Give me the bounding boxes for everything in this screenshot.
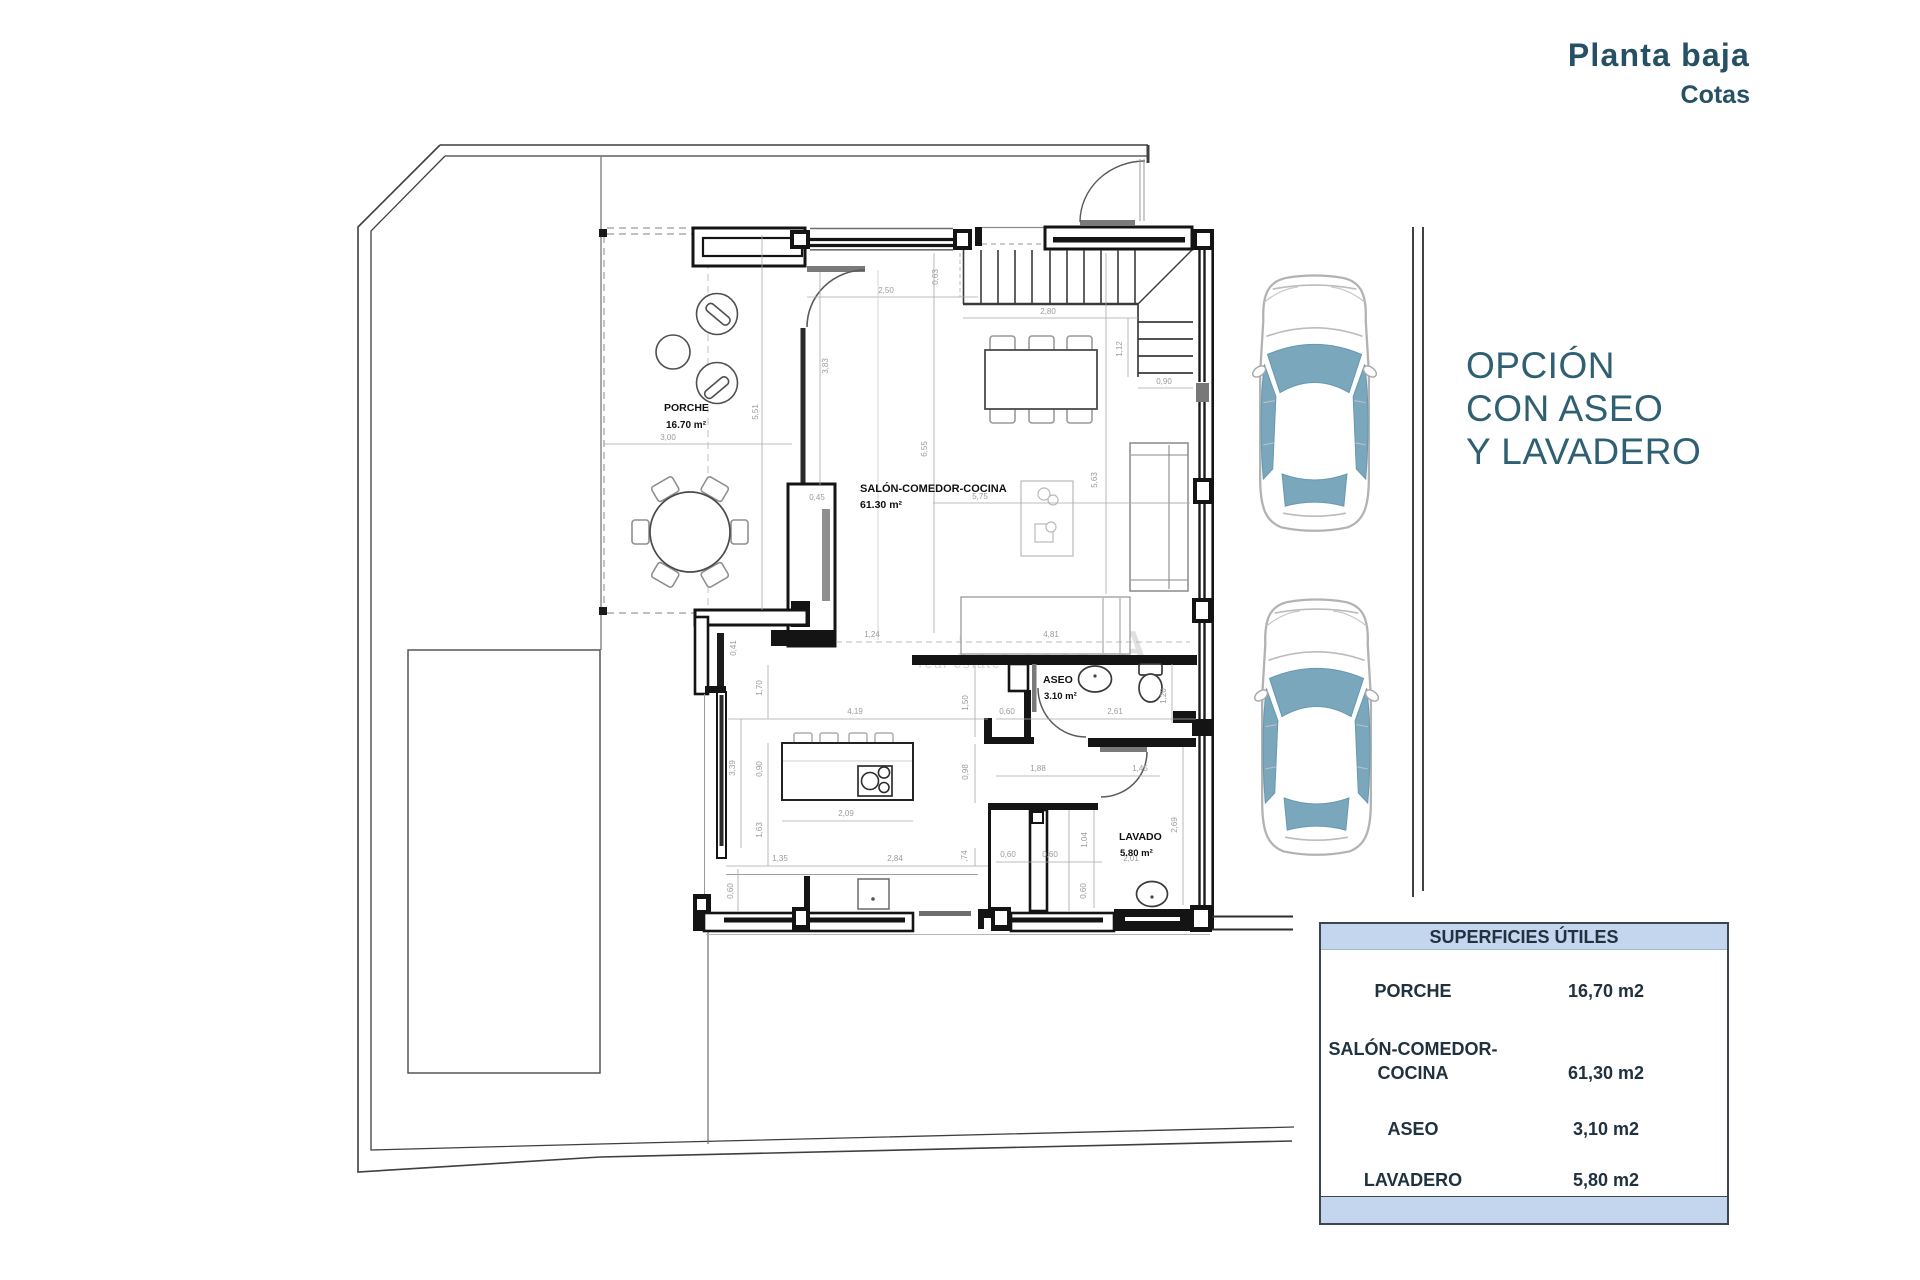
svg-text:1,88: 1,88 xyxy=(1030,764,1046,773)
svg-text:PORCHE: PORCHE xyxy=(664,402,709,414)
svg-text:1,45: 1,45 xyxy=(1132,764,1148,773)
svg-text:LAVADO: LAVADO xyxy=(1119,831,1162,843)
svg-text:1,20: 1,20 xyxy=(1159,688,1168,704)
svg-text:0,41: 0,41 xyxy=(729,640,738,656)
svg-text:1,12: 1,12 xyxy=(1115,341,1124,357)
svg-text:0,60: 0,60 xyxy=(999,707,1015,716)
svg-text:1,63: 1,63 xyxy=(755,822,764,838)
svg-text:0,63: 0,63 xyxy=(931,269,940,285)
svg-text:5,51: 5,51 xyxy=(751,404,760,420)
svg-text:3,00: 3,00 xyxy=(660,433,676,442)
svg-text:1,70: 1,70 xyxy=(755,680,764,696)
svg-text:0,60: 0,60 xyxy=(1079,883,1088,899)
svg-text:2,50: 2,50 xyxy=(878,286,894,295)
svg-text:3,39: 3,39 xyxy=(728,760,737,776)
svg-text:1,24: 1,24 xyxy=(864,630,880,639)
svg-text:SALÓN-COMEDOR-COCINA: SALÓN-COMEDOR-COCINA xyxy=(860,482,1007,495)
svg-text:,74: ,74 xyxy=(960,850,969,862)
svg-text:2,09: 2,09 xyxy=(838,809,854,818)
svg-text:4,81: 4,81 xyxy=(1043,630,1059,639)
svg-text:0,90: 0,90 xyxy=(1156,377,1172,386)
svg-text:0,98: 0,98 xyxy=(961,764,970,780)
svg-text:6,55: 6,55 xyxy=(920,441,929,457)
svg-text:0,60: 0,60 xyxy=(726,883,735,899)
svg-text:0,60: 0,60 xyxy=(1000,850,1016,859)
svg-text:2,69: 2,69 xyxy=(1170,817,1179,833)
svg-text:2,84: 2,84 xyxy=(887,854,903,863)
svg-text:4,19: 4,19 xyxy=(847,707,863,716)
svg-text:3,83: 3,83 xyxy=(821,358,830,374)
svg-text:61.30 m²: 61.30 m² xyxy=(860,499,903,511)
svg-text:1,35: 1,35 xyxy=(772,854,788,863)
svg-text:3.10 m²: 3.10 m² xyxy=(1044,691,1077,702)
svg-text:0,60: 0,60 xyxy=(1042,850,1058,859)
svg-text:0,45: 0,45 xyxy=(809,493,825,502)
svg-text:2,61: 2,61 xyxy=(1107,707,1123,716)
svg-text:ASEO: ASEO xyxy=(1043,674,1073,686)
svg-text:5.80 m²: 5.80 m² xyxy=(1120,848,1153,859)
svg-text:16.70 m²: 16.70 m² xyxy=(666,420,707,431)
svg-text:1,50: 1,50 xyxy=(961,695,970,711)
svg-text:2,80: 2,80 xyxy=(1040,307,1056,316)
svg-text:5,63: 5,63 xyxy=(1090,472,1099,488)
svg-text:0,90: 0,90 xyxy=(755,761,764,777)
svg-text:1,04: 1,04 xyxy=(1080,832,1089,848)
